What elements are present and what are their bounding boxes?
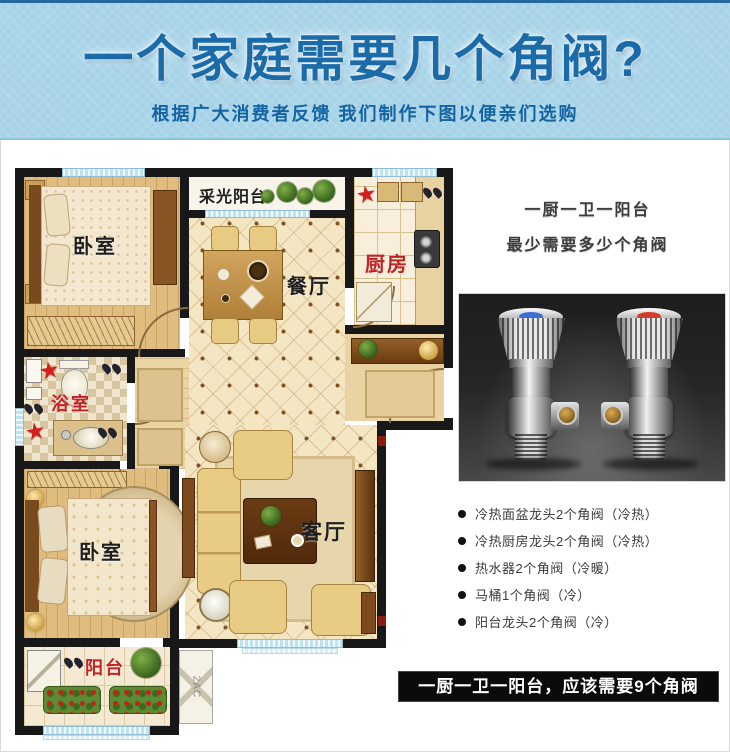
panel-heading-line1: 一厨一卫一阳台	[445, 196, 730, 220]
wall	[150, 726, 179, 735]
bullet-icon	[458, 510, 466, 518]
pillow	[37, 505, 69, 553]
bullet-icon	[458, 564, 466, 572]
valve-requirements-list: 冷热面盆龙头2个角阀（冷热） 冷热厨房龙头2个角阀（冷热） 热水器2个角阀（冷暖…	[458, 500, 730, 635]
dining-table	[203, 250, 283, 320]
header-banner: 一个家庭需要几个角阀? 根据广大消费者反馈 我们制作下图以便亲们选购	[0, 0, 730, 140]
hall-mat	[137, 428, 183, 466]
dining-chair	[249, 226, 277, 252]
cabinet	[361, 592, 376, 634]
dining-plate	[247, 260, 269, 282]
list-item: 冷热厨房龙头2个角阀（冷热）	[458, 527, 730, 554]
sofa	[197, 468, 241, 594]
kitchen-label: 厨房	[365, 248, 409, 277]
hall-mat	[137, 368, 183, 422]
tv-cabinet	[355, 470, 375, 582]
side-table	[199, 431, 231, 463]
bullet-icon	[458, 618, 466, 626]
window	[237, 639, 343, 648]
bedside-lamp	[27, 614, 44, 631]
red-star-icon: ★	[23, 418, 47, 444]
fridge	[356, 282, 392, 322]
door-mat	[365, 370, 435, 418]
page-subtitle: 根据广大消费者反馈 我们制作下图以便亲们选购	[0, 100, 730, 126]
valve-shadow	[485, 458, 581, 470]
wall	[180, 210, 205, 218]
hot-angle-valve	[611, 308, 687, 460]
window	[205, 210, 310, 218]
wall	[15, 168, 62, 177]
valve-handle	[615, 318, 683, 360]
valve-neck	[512, 367, 550, 399]
window	[15, 408, 24, 446]
wardrobe	[27, 471, 127, 488]
daylight-balcony-label: 采光阳台	[199, 183, 267, 207]
tv-stand	[182, 478, 195, 578]
dining-label: 餐厅	[287, 270, 331, 299]
stove-burner	[420, 252, 432, 264]
window-sill	[43, 735, 150, 740]
valve-body	[625, 397, 673, 437]
list-item-text: 热水器2个角阀（冷暖）	[475, 558, 618, 577]
wall-socket	[378, 436, 386, 446]
armchair	[233, 430, 293, 480]
wall	[180, 177, 189, 318]
wall	[24, 461, 120, 469]
kitchen-sink	[401, 182, 423, 202]
flower-box	[109, 686, 167, 714]
dining-plate	[221, 294, 230, 303]
window	[372, 168, 437, 177]
dining-plate	[217, 268, 230, 281]
list-item: 冷热面盆龙头2个角阀（冷热）	[458, 500, 730, 527]
wall	[343, 639, 386, 648]
page: 一个家庭需要几个角阀? 根据广大消费者反馈 我们制作下图以便亲们选购	[0, 0, 730, 752]
page-title: 一个家庭需要几个角阀?	[0, 19, 730, 91]
window	[62, 168, 145, 177]
wall	[127, 357, 135, 383]
table-lamp	[419, 341, 438, 360]
faucet-icon	[99, 426, 118, 440]
pillow	[43, 193, 71, 237]
pillow	[43, 243, 71, 287]
bathroom-cabinet	[26, 387, 42, 400]
plant-icon	[261, 506, 281, 526]
window-sill	[242, 648, 338, 654]
bullet-icon	[458, 537, 466, 545]
wall-socket	[378, 616, 386, 626]
toilet-tank	[59, 360, 89, 369]
wall	[127, 423, 135, 469]
list-item: 马桶1个角阀（冷）	[458, 581, 730, 608]
valve-inlet-thread	[515, 434, 547, 460]
plant-icon	[313, 180, 335, 202]
panel-heading-line2: 最少需要多少个角阀	[445, 231, 730, 255]
dining-chair	[249, 318, 277, 344]
valve-outlet	[551, 402, 579, 430]
armchair	[229, 580, 287, 634]
dresser	[153, 190, 177, 285]
kitchen-sink	[377, 182, 399, 202]
valve-neck	[630, 367, 668, 399]
bed	[29, 185, 41, 303]
pillow	[37, 557, 70, 606]
bathroom-label: 浴室	[51, 390, 91, 416]
wall	[377, 430, 386, 639]
flower-box	[43, 686, 101, 714]
list-item-text: 冷热面盆龙头2个角阀（冷热）	[475, 504, 658, 523]
faucet-icon	[65, 656, 84, 670]
list-item-text: 阳台龙头2个角阀（冷）	[475, 612, 618, 631]
wardrobe	[27, 316, 135, 346]
wall	[310, 210, 346, 218]
valve-brass-port	[557, 405, 577, 425]
valve-brass-port	[603, 405, 623, 425]
cold-angle-valve	[493, 308, 569, 460]
plant-icon	[297, 188, 313, 204]
bedroom-bottom-label: 卧室	[79, 536, 123, 565]
valve-outlet	[601, 402, 629, 430]
balcony-label: 阳台	[85, 654, 125, 680]
wall	[145, 168, 372, 177]
red-star-icon: ★	[37, 357, 61, 383]
faucet-icon	[103, 362, 122, 376]
plant-icon	[131, 648, 161, 678]
plant-icon	[277, 182, 297, 202]
wall	[15, 446, 24, 735]
list-item: 热水器2个角阀（冷暖）	[458, 554, 730, 581]
window	[43, 726, 150, 735]
ac-platform-label: 2AC	[191, 676, 202, 698]
plant-icon	[359, 340, 377, 358]
wall	[15, 177, 24, 408]
plant-icon	[261, 190, 274, 203]
red-star-icon: ★	[354, 181, 378, 207]
bed-footboard	[149, 500, 157, 612]
list-item-text: 冷热厨房龙头2个角阀（冷热）	[475, 531, 658, 550]
wall	[170, 647, 179, 735]
wall	[170, 639, 237, 648]
side-table	[199, 588, 233, 622]
basin-tap	[61, 430, 71, 440]
dining-chair	[211, 226, 239, 252]
floor-plan: 卧室 采光阳台 ★ 厨房 餐厅	[15, 168, 460, 740]
faucet-icon	[25, 402, 44, 416]
wall	[345, 177, 354, 288]
bullet-icon	[458, 591, 466, 599]
dining-chair	[211, 318, 239, 344]
wall	[163, 638, 179, 647]
valve-inlet-thread	[633, 434, 665, 460]
ac-platform: 2AC	[179, 650, 213, 724]
list-item-text: 马桶1个角阀（冷）	[475, 585, 591, 604]
valve-body	[507, 397, 555, 437]
valve-shadow	[603, 458, 699, 470]
valve-handle	[497, 318, 565, 360]
conclusion-banner: 一厨一卫一阳台，应该需要9个角阀	[398, 671, 719, 702]
stove-burner	[420, 236, 432, 248]
living-label: 客厅	[301, 516, 347, 546]
wall	[15, 638, 120, 647]
bedroom-top-label: 卧室	[73, 230, 117, 259]
list-item: 阳台龙头2个角阀（冷）	[458, 608, 730, 635]
valve-product-photo	[458, 293, 726, 482]
faucet-icon	[424, 186, 443, 200]
